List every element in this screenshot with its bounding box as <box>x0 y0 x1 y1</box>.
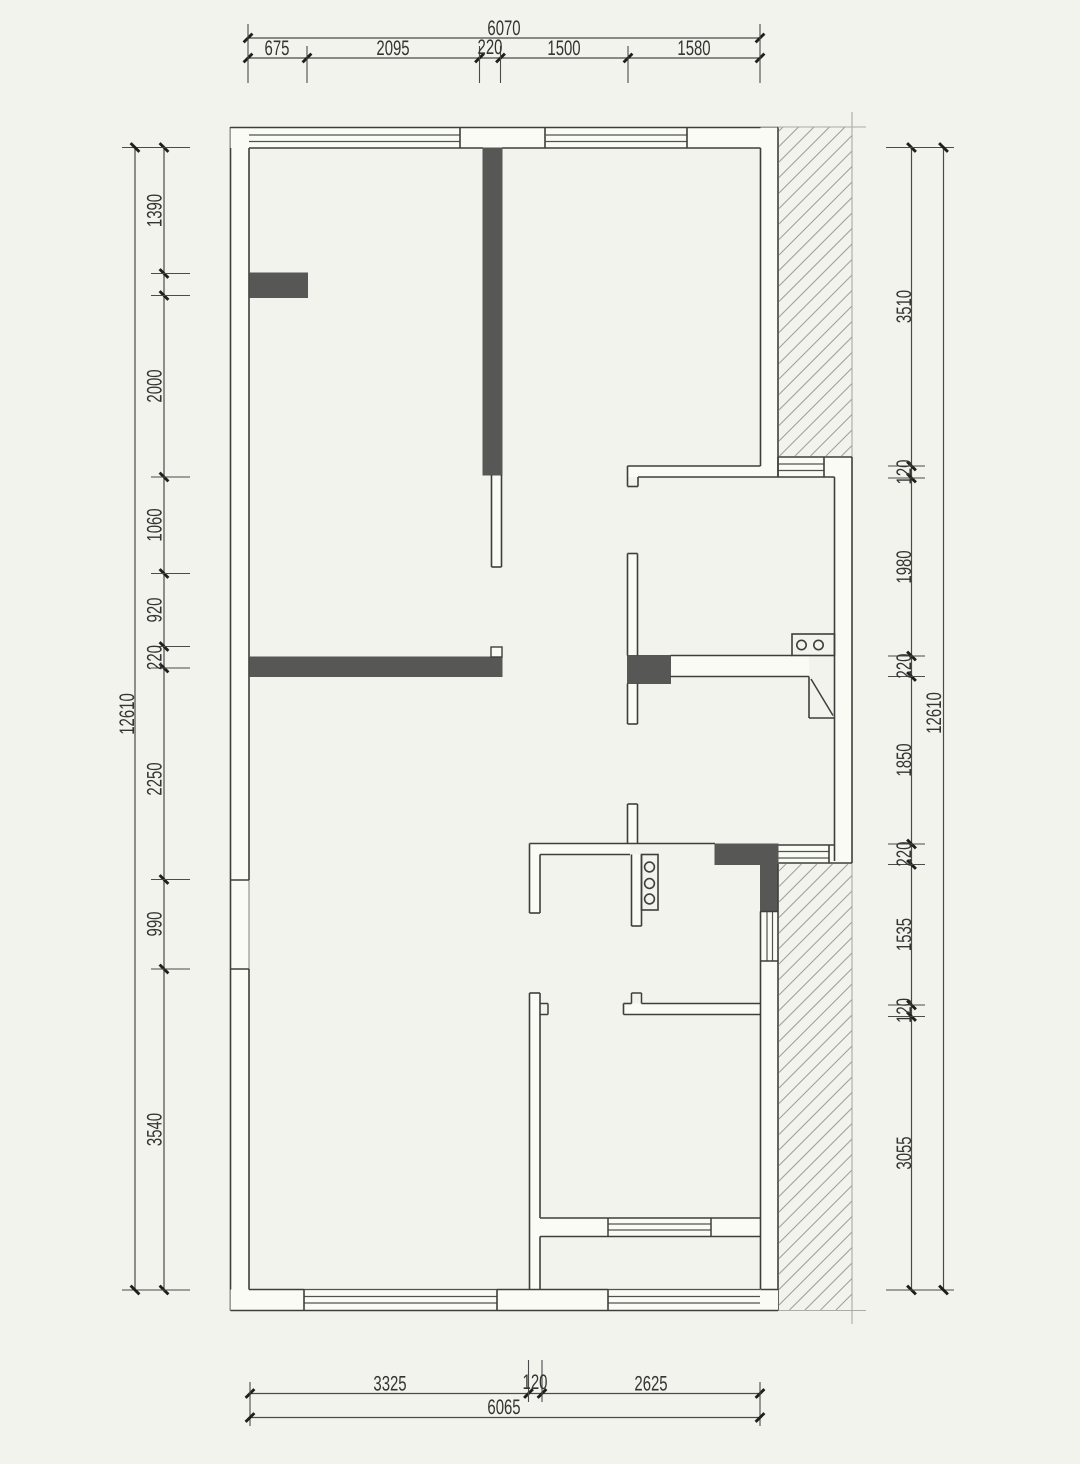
svg-text:1500: 1500 <box>547 37 580 60</box>
svg-text:1580: 1580 <box>677 37 710 60</box>
svg-text:2625: 2625 <box>634 1373 667 1396</box>
svg-text:1390: 1390 <box>144 194 167 227</box>
svg-text:3510: 3510 <box>893 290 916 323</box>
svg-text:2000: 2000 <box>144 369 167 402</box>
svg-text:990: 990 <box>144 912 167 937</box>
svg-text:2095: 2095 <box>376 37 409 60</box>
svg-text:220: 220 <box>478 36 503 59</box>
svg-text:120: 120 <box>893 460 916 485</box>
svg-text:12610: 12610 <box>116 693 139 735</box>
svg-text:220: 220 <box>144 645 167 670</box>
svg-text:3325: 3325 <box>373 1373 406 1396</box>
svg-text:1980: 1980 <box>893 550 916 583</box>
svg-text:220: 220 <box>893 842 916 867</box>
svg-text:120: 120 <box>893 998 916 1023</box>
svg-text:120: 120 <box>523 1371 548 1394</box>
svg-text:1535: 1535 <box>893 918 916 951</box>
svg-text:3055: 3055 <box>893 1136 916 1169</box>
svg-text:920: 920 <box>144 598 167 623</box>
svg-text:220: 220 <box>893 654 916 679</box>
svg-text:2250: 2250 <box>144 762 167 795</box>
svg-text:12610: 12610 <box>923 692 946 734</box>
svg-text:1850: 1850 <box>893 743 916 776</box>
svg-text:675: 675 <box>265 37 290 60</box>
svg-text:6065: 6065 <box>487 1396 520 1419</box>
svg-text:3540: 3540 <box>144 1113 167 1146</box>
svg-text:1060: 1060 <box>144 508 167 541</box>
